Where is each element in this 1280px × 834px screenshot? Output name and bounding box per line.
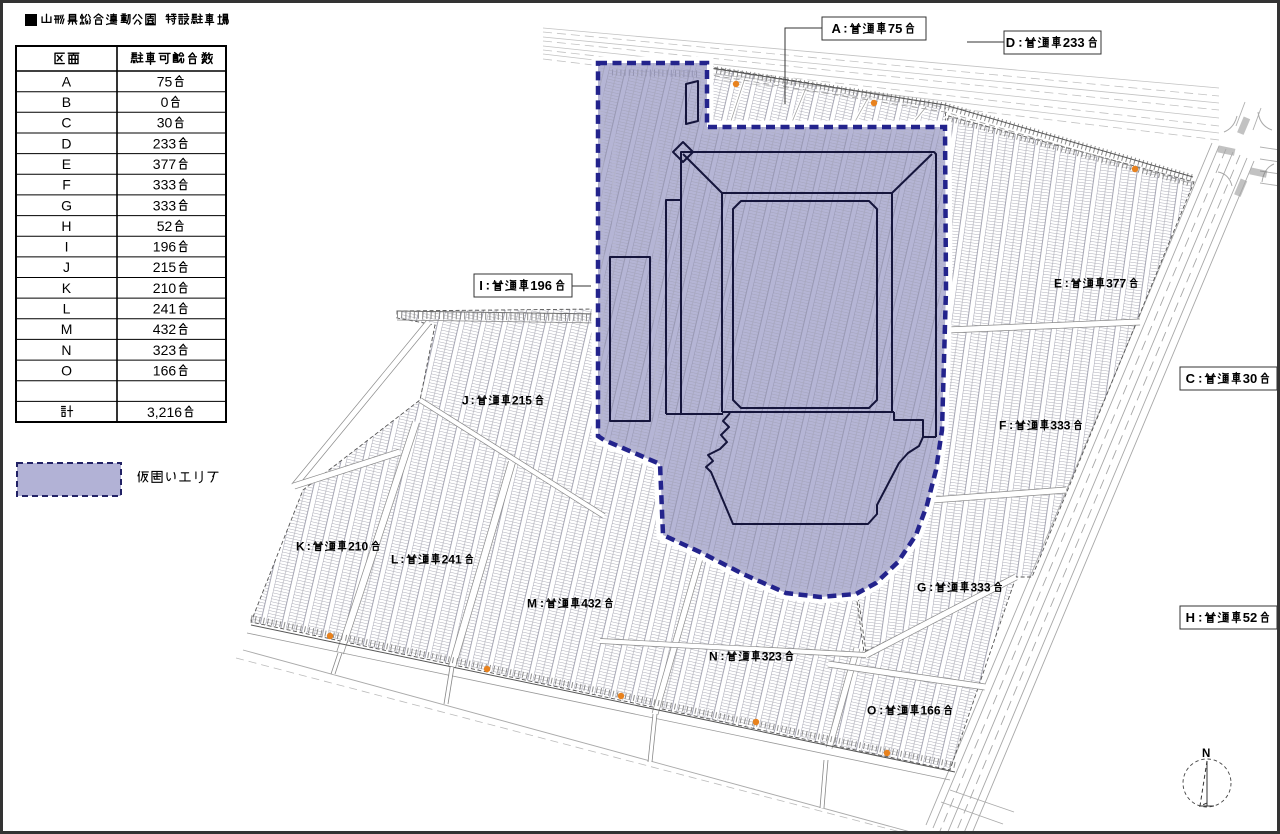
svg-text:E: E [62,156,71,172]
svg-text:O: O [61,363,72,379]
svg-text::: : [1065,276,1069,290]
svg-text:K: K [296,539,305,553]
svg-text:A: A [832,21,842,36]
svg-text:O: O [867,703,876,717]
svg-text::: : [1018,34,1022,49]
svg-text:N: N [709,649,718,663]
svg-text:75: 75 [888,21,902,36]
svg-text:323: 323 [153,342,177,358]
svg-text:52: 52 [1243,610,1257,625]
svg-text:196: 196 [153,239,177,255]
svg-text:C: C [61,115,71,131]
svg-text::: : [400,552,404,566]
svg-text:166: 166 [921,703,941,717]
svg-text::: : [307,539,311,553]
svg-text:241: 241 [153,301,177,317]
svg-text:N: N [1202,748,1210,760]
svg-text:3,216: 3,216 [147,404,182,420]
svg-text:B: B [62,94,71,110]
svg-text:J: J [63,259,70,275]
svg-text:G: G [917,580,926,594]
svg-text:377: 377 [153,156,177,172]
svg-text:I: I [479,278,483,293]
svg-text::: : [721,649,725,663]
svg-text::: : [471,393,475,407]
svg-text:377: 377 [1106,276,1126,290]
svg-text:I: I [65,239,69,255]
svg-text:M: M [61,321,73,337]
svg-text:196: 196 [530,278,552,293]
svg-text:241: 241 [442,552,462,566]
svg-text:233: 233 [1063,35,1085,50]
svg-text:215: 215 [153,259,177,275]
svg-text::: : [486,277,490,292]
svg-text:210: 210 [348,539,368,553]
svg-text:H: H [1186,610,1195,625]
svg-text:432: 432 [581,596,601,610]
svg-text:323: 323 [762,649,782,663]
svg-text:210: 210 [153,280,177,296]
svg-text:233: 233 [153,135,177,151]
svg-text:75: 75 [157,73,173,89]
svg-text:333: 333 [1050,418,1070,432]
svg-text:432: 432 [153,321,177,337]
svg-text:215: 215 [512,393,532,407]
svg-text:L: L [391,552,398,566]
svg-text:E: E [1054,276,1062,290]
svg-text::: : [540,596,544,610]
svg-text:D: D [61,135,71,151]
svg-text:D: D [1006,35,1015,50]
svg-text:M: M [527,596,537,610]
svg-text:L: L [63,301,71,317]
svg-text::: : [843,20,847,35]
svg-text:F: F [999,418,1006,432]
svg-text::: : [1009,418,1013,432]
svg-text:333: 333 [153,197,177,213]
svg-text:A: A [62,73,72,89]
svg-text:333: 333 [153,177,177,193]
svg-text::: : [1198,609,1202,624]
svg-text:30: 30 [157,115,173,131]
svg-text:0: 0 [161,94,169,110]
svg-text:J: J [462,393,469,407]
svg-text:30: 30 [1243,371,1257,386]
svg-text:H: H [61,218,71,234]
svg-text:K: K [62,280,72,296]
svg-text:166: 166 [153,363,177,379]
svg-text::: : [879,703,883,717]
svg-text:F: F [62,177,71,193]
svg-text::: : [929,580,933,594]
svg-text::: : [1198,370,1202,385]
svg-text:N: N [61,342,71,358]
svg-text:G: G [61,197,72,213]
svg-text:52: 52 [157,218,173,234]
svg-text:C: C [1186,371,1196,386]
svg-text:333: 333 [971,580,991,594]
